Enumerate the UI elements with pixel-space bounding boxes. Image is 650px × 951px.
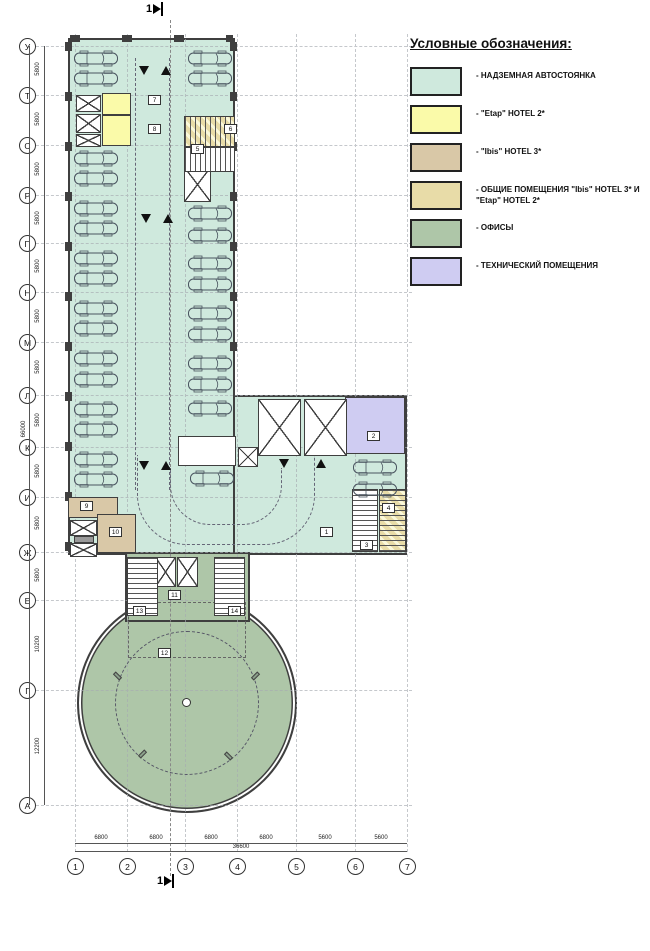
- room-tag: 12: [158, 648, 171, 658]
- elevator-shaft: [184, 167, 211, 202]
- elevator-shaft: [70, 543, 97, 557]
- car-icon: [73, 471, 119, 488]
- axis-marker-row: У: [19, 38, 36, 55]
- legend-label: - ОФИСЫ: [476, 219, 513, 234]
- section-bar: [172, 874, 174, 888]
- legend-item-shared: - ОБЩИЕ ПОМЕЩЕНИЯ "Ibis" HOTEL 3* И "Eta…: [410, 181, 642, 210]
- axis-marker-col: 4: [229, 858, 246, 875]
- elevator-shaft: [238, 447, 258, 467]
- section-mark-bottom: 1: [157, 874, 174, 888]
- traffic-arrow-icon: [139, 66, 149, 75]
- room-tag: 14: [228, 606, 241, 616]
- traffic-arrow-icon: [163, 214, 173, 223]
- dimension-line-left-total: [29, 46, 30, 805]
- axis-marker-row: Р: [19, 187, 36, 204]
- car-icon: [73, 220, 119, 237]
- legend-swatch-parking: [410, 67, 462, 96]
- axis-marker-col: 6: [347, 858, 364, 875]
- elevator-shaft: [76, 95, 101, 112]
- dimension-label-left: 5800: [35, 510, 41, 536]
- axis-marker-row: А: [19, 797, 36, 814]
- legend-label: - ОБЩИЕ ПОМЕЩЕНИЯ "Ibis" HOTEL 3* И "Eta…: [476, 181, 642, 207]
- legend-item-ibis: - "Ibis" HOTEL 3*: [410, 143, 642, 172]
- elevator-shaft: [70, 520, 97, 536]
- car-icon: [73, 250, 119, 267]
- legend-label: - "Ibis" HOTEL 3*: [476, 143, 541, 158]
- car-icon: [73, 300, 119, 317]
- car-icon: [189, 470, 235, 487]
- elevator-shaft: [155, 557, 176, 587]
- traffic-arrow-icon: [161, 66, 171, 75]
- room-tag: 2: [367, 431, 380, 441]
- dimension-label-left: 5800: [35, 562, 41, 588]
- legend-swatch-etap: [410, 105, 462, 134]
- dimension-label-left: 5800: [35, 458, 41, 484]
- traffic-arrow-icon: [141, 214, 151, 223]
- legend-swatch-tech: [410, 257, 462, 286]
- dimension-line-bottom: [75, 843, 407, 844]
- axis-marker-row: М: [19, 334, 36, 351]
- axis-marker-row: Т: [19, 87, 36, 104]
- car-icon: [73, 451, 119, 468]
- car-icon: [352, 459, 398, 476]
- axis-marker-col: 3: [177, 858, 194, 875]
- car-icon: [73, 350, 119, 367]
- legend-swatch-offices: [410, 219, 462, 248]
- room-area: [345, 397, 405, 454]
- legend-label: - ТЕХНИЧЕСКИЙ ПОМЕЩЕНИЯ: [476, 257, 598, 272]
- axis-marker-row: Е: [19, 592, 36, 609]
- room-tag: 11: [168, 590, 181, 600]
- car-icon: [187, 227, 233, 244]
- axis-marker-row: П: [19, 235, 36, 252]
- legend-label: - "Etap" HOTEL 2*: [476, 105, 545, 120]
- room-area: [102, 115, 131, 146]
- elevator-shaft: [76, 134, 101, 147]
- car-icon: [352, 481, 398, 498]
- car-icon: [73, 371, 119, 388]
- legend-item-parking: - НАДЗЕМНАЯ АВТОСТОЯНКА: [410, 67, 642, 96]
- elevator-shaft: [177, 557, 198, 587]
- car-icon: [73, 200, 119, 217]
- axis-marker-row: Г: [19, 682, 36, 699]
- dimension-label-bottom: 5600: [310, 835, 340, 841]
- car-icon: [73, 170, 119, 187]
- traffic-arrow-icon: [279, 459, 289, 468]
- floor-plan-sheet: 1234567УТСРПНМЛКИЖЕГА5800580058005800580…: [0, 0, 650, 951]
- dimension-label-left: 5800: [35, 205, 41, 231]
- car-icon: [187, 255, 233, 272]
- room-area: [178, 436, 236, 466]
- room-tag: 10: [109, 527, 122, 537]
- legend-title: Условные обозначения:: [410, 36, 642, 51]
- dimension-label-bottom: 6800: [251, 835, 281, 841]
- room-area: [102, 93, 131, 115]
- axis-marker-col: 7: [399, 858, 416, 875]
- section-arrow-icon: [164, 876, 172, 886]
- dimension-label-left: 5800: [35, 303, 41, 329]
- section-label: 1: [157, 875, 163, 887]
- axis-marker-row: Л: [19, 387, 36, 404]
- elevator-shaft: [76, 114, 101, 133]
- room-area: [74, 536, 94, 543]
- axis-marker-row: С: [19, 137, 36, 154]
- room-tag: 3: [360, 540, 373, 550]
- legend-item-tech: - ТЕХНИЧЕСКИЙ ПОМЕЩЕНИЯ: [410, 257, 642, 286]
- axis-marker-col: 5: [288, 858, 305, 875]
- room-tag: 6: [224, 124, 237, 134]
- dimension-label-left: 5800: [35, 106, 41, 132]
- car-icon: [187, 50, 233, 67]
- car-icon: [187, 355, 233, 372]
- car-icon: [73, 70, 119, 87]
- dimension-label-left: 5800: [35, 156, 41, 182]
- stair: [379, 489, 406, 552]
- axis-marker-row: Ж: [19, 544, 36, 561]
- section-arrow-icon: [153, 4, 161, 14]
- legend-item-offices: - ОФИСЫ: [410, 219, 642, 248]
- legend-label: - НАДЗЕМНАЯ АВТОСТОЯНКА: [476, 67, 596, 82]
- axis-marker-row: Н: [19, 284, 36, 301]
- dimension-label-bottom: 6800: [196, 835, 226, 841]
- car-icon: [73, 320, 119, 337]
- room-tag: 4: [382, 503, 395, 513]
- dimension-label-left: 5800: [35, 56, 41, 82]
- elevator-shaft: [304, 399, 347, 456]
- traffic-arrow-icon: [161, 461, 171, 470]
- traffic-arrow-icon: [316, 459, 326, 468]
- car-icon: [73, 421, 119, 438]
- dimension-label-left: 5800: [35, 407, 41, 433]
- room-tag: 13: [133, 606, 146, 616]
- car-icon: [187, 205, 233, 222]
- axis-marker-row: И: [19, 489, 36, 506]
- elevator-shaft: [258, 399, 301, 456]
- dimension-label-bottom: 6800: [86, 835, 116, 841]
- dimension-label-bottom: 5600: [366, 835, 396, 841]
- dimension-label-left: 12200: [35, 733, 41, 759]
- car-icon: [187, 400, 233, 417]
- dimension-label-bottom-total: 36600: [226, 844, 256, 850]
- car-icon: [187, 326, 233, 343]
- axis-marker-col: 2: [119, 858, 136, 875]
- legend-swatch-ibis: [410, 143, 462, 172]
- room-tag: 9: [80, 501, 93, 511]
- car-icon: [187, 376, 233, 393]
- dimension-label-left: 5800: [35, 354, 41, 380]
- dimension-label-left-total: 66000: [21, 415, 27, 443]
- dimension-label-left: 10200: [35, 631, 41, 657]
- dimension-line-left: [44, 46, 45, 805]
- car-icon: [73, 50, 119, 67]
- dimension-label-bottom: 6800: [141, 835, 171, 841]
- section-mark-top: 1: [146, 2, 163, 16]
- legend: Условные обозначения: - НАДЗЕМНАЯ АВТОСТ…: [410, 36, 642, 295]
- section-bar: [161, 2, 163, 16]
- axis-marker-col: 1: [67, 858, 84, 875]
- car-icon: [73, 150, 119, 167]
- room-tag: 5: [191, 144, 204, 154]
- traffic-arrow-icon: [139, 461, 149, 470]
- section-label: 1: [146, 3, 152, 15]
- car-icon: [73, 270, 119, 287]
- car-icon: [187, 305, 233, 322]
- car-icon: [73, 401, 119, 418]
- room-tag: 1: [320, 527, 333, 537]
- dimension-line-bottom-total: [75, 851, 407, 852]
- dimension-label-left: 5800: [35, 253, 41, 279]
- car-icon: [187, 70, 233, 87]
- legend-item-etap: - "Etap" HOTEL 2*: [410, 105, 642, 134]
- room-tag: 8: [148, 124, 161, 134]
- car-icon: [187, 276, 233, 293]
- legend-swatch-shared: [410, 181, 462, 210]
- room-tag: 7: [148, 95, 161, 105]
